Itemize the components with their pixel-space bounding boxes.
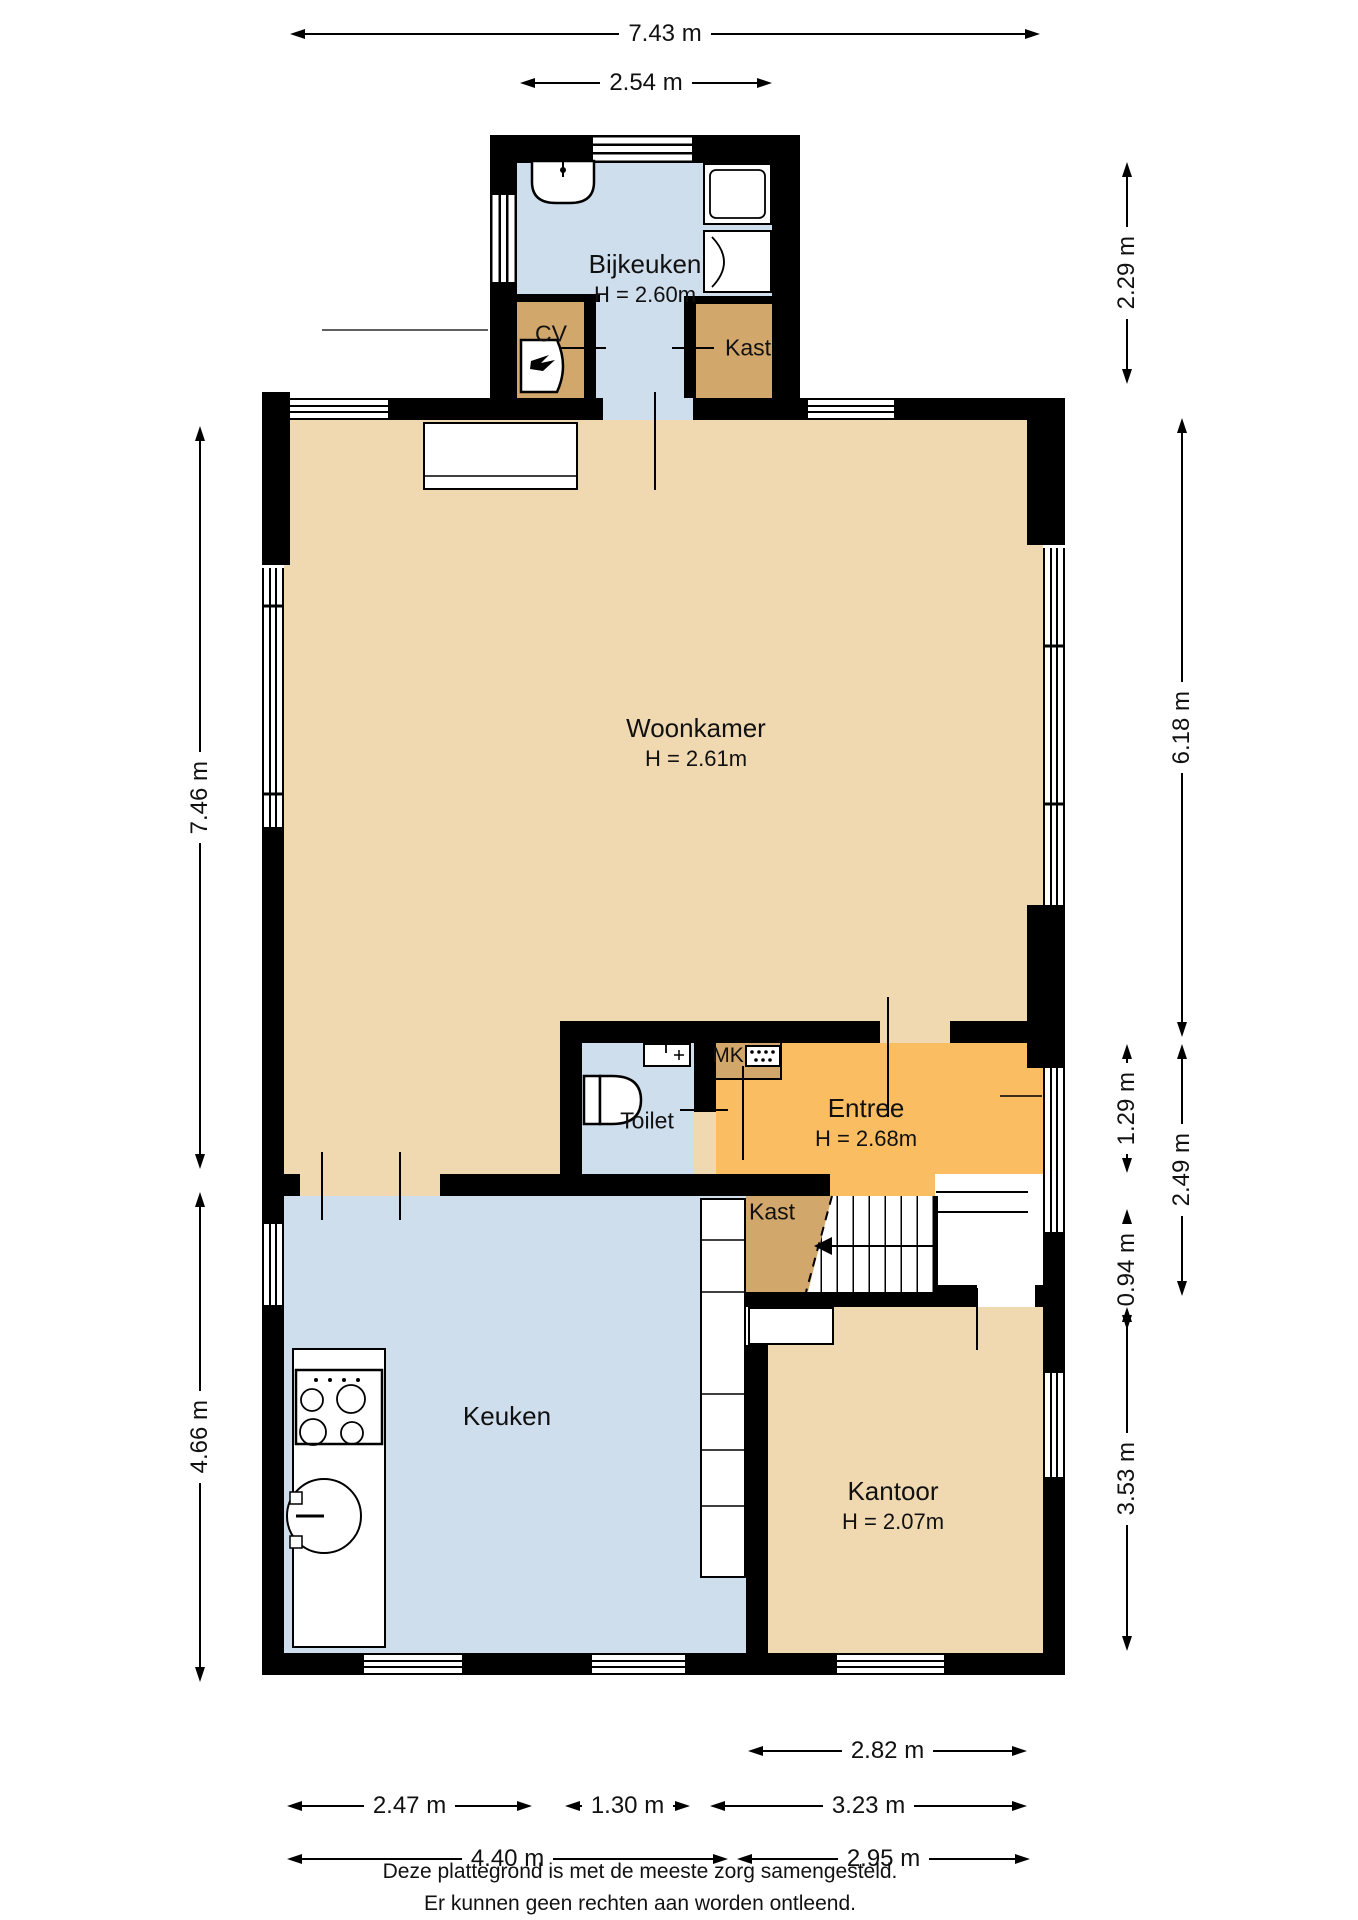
- label-woonkamer: Woonkamer H = 2.61m: [626, 712, 766, 772]
- wall: [262, 392, 290, 565]
- window: [262, 568, 284, 827]
- wall: [944, 1653, 1065, 1675]
- label-kantoor: Kantoor H = 2.07m: [842, 1475, 944, 1535]
- arrow-down-icon: [1122, 369, 1132, 384]
- wall: [950, 1021, 1043, 1043]
- disclaimer: Deze plattegrond is met de meeste zorg s…: [240, 1856, 1040, 1919]
- arrow-up-icon: [1177, 418, 1187, 433]
- wall: [262, 1653, 364, 1675]
- room-height: H = 2.07m: [842, 1508, 944, 1536]
- arrow-right-icon: [1012, 1801, 1027, 1811]
- window: [290, 398, 388, 420]
- dim-label: 1.30 m: [582, 1792, 673, 1820]
- dim-label: 2.29 m: [1113, 227, 1141, 318]
- dim-left-lower: 4.66 m: [191, 1192, 209, 1682]
- label-kast-top: Kast: [725, 334, 771, 363]
- wall: [560, 1021, 880, 1043]
- arrow-right-icon: [517, 1801, 532, 1811]
- arrow-down-icon: [195, 1667, 205, 1682]
- washing-machine-icon: [703, 163, 772, 225]
- wall: [772, 135, 800, 420]
- dim-label: 3.23 m: [823, 1792, 914, 1820]
- wall: [262, 1305, 284, 1675]
- label-entree: Entree H = 2.68m: [815, 1092, 917, 1152]
- arrow-up-icon: [1122, 162, 1132, 177]
- arrow-up-icon: [1122, 1044, 1132, 1059]
- arrow-down-icon: [1177, 1281, 1187, 1296]
- dim-bottom-kantoor-upper: 3.23 m: [710, 1797, 1027, 1815]
- wall: [262, 1174, 300, 1196]
- room-hal-landing: [935, 1174, 1043, 1292]
- dim-label: 1.29 m: [1113, 1063, 1141, 1154]
- disclaimer-line1: Deze plattegrond is met de meeste zorg s…: [240, 1856, 1040, 1888]
- dim-bottom-keuken-mid: 1.30 m: [565, 1797, 690, 1815]
- wall: [1035, 1285, 1043, 1307]
- wall: [560, 1021, 582, 1174]
- window: [364, 1653, 462, 1675]
- room-height: H = 2.61m: [626, 745, 766, 773]
- wall: [262, 827, 284, 1224]
- arrow-up-icon: [195, 426, 205, 441]
- wall: [388, 398, 603, 420]
- room-height: H = 2.68m: [815, 1125, 917, 1153]
- wall: [684, 300, 696, 398]
- window: [490, 195, 517, 282]
- wall: [490, 294, 600, 302]
- arrow-up-icon: [1122, 1209, 1132, 1224]
- dim-label: 2.47 m: [364, 1792, 455, 1820]
- dim-right-hal: 0.94 m: [1118, 1209, 1136, 1300]
- arrow-right-icon: [1012, 1746, 1027, 1756]
- front-door: [1043, 1068, 1065, 1232]
- room-name: Kantoor: [842, 1475, 944, 1508]
- dim-bottom-kantoor-top: 2.82 m: [748, 1742, 1027, 1760]
- window: [837, 1653, 944, 1675]
- arrow-up-icon: [1122, 1307, 1132, 1322]
- wall: [1027, 905, 1065, 1068]
- wall: [693, 398, 808, 420]
- dim-label: 6.18 m: [1168, 682, 1196, 773]
- label-cv: CV: [535, 320, 567, 349]
- wall: [490, 135, 517, 195]
- arrow-right-icon: [757, 78, 772, 88]
- window: [1043, 1373, 1065, 1477]
- arrow-up-icon: [1177, 1044, 1187, 1059]
- window: [262, 1224, 284, 1305]
- room-name: Entree: [815, 1092, 917, 1125]
- arrow-down-icon: [1122, 1636, 1132, 1651]
- kitchen-counter-right: [700, 1198, 746, 1578]
- dim-bottom-keuken-left: 2.47 m: [287, 1797, 532, 1815]
- kitchen-counter-left: [292, 1348, 386, 1648]
- window: [593, 135, 692, 163]
- dim-right-entree-total: 2.49 m: [1173, 1044, 1191, 1296]
- stairs-closet: [748, 1307, 834, 1345]
- arrow-left-icon: [710, 1801, 725, 1811]
- arrow-down-icon: [1122, 1158, 1132, 1173]
- dim-label: 2.49 m: [1168, 1124, 1196, 1215]
- room-height: H = 2.60m: [589, 281, 702, 309]
- floor-plan: Bijkeuken H = 2.60m CV Kast Woonkamer H …: [0, 0, 1358, 1920]
- wall: [1043, 1232, 1065, 1373]
- label-toilet: Toilet: [620, 1107, 674, 1136]
- wall: [440, 1174, 830, 1196]
- dim-right-woonkamer: 6.18 m: [1173, 418, 1191, 1037]
- dim-label: 7.43 m: [619, 20, 710, 48]
- arrow-down-icon: [195, 1154, 205, 1169]
- dim-right-bijkeuken: 2.29 m: [1118, 162, 1136, 384]
- arrow-left-icon: [520, 78, 535, 88]
- arrow-up-icon: [195, 1192, 205, 1207]
- room-name: Bijkeuken: [589, 248, 702, 281]
- label-kast-mid: Kast: [749, 1198, 795, 1227]
- dim-label: 7.46 m: [186, 752, 214, 843]
- arrow-left-icon: [565, 1801, 580, 1811]
- wall: [746, 1345, 768, 1653]
- disclaimer-line2: Er kunnen geen rechten aan worden ontlee…: [240, 1888, 1040, 1920]
- label-keuken: Keuken: [463, 1400, 551, 1433]
- arrow-left-icon: [290, 29, 305, 39]
- dim-top-bijkeuken: 2.54 m: [520, 74, 772, 92]
- wall: [1043, 1477, 1065, 1675]
- arrow-right-icon: [675, 1801, 690, 1811]
- dim-top-total: 7.43 m: [290, 25, 1040, 43]
- window: [1043, 548, 1065, 905]
- dim-label: 4.66 m: [186, 1391, 214, 1482]
- arrow-right-icon: [1025, 29, 1040, 39]
- label-bijkeuken: Bijkeuken H = 2.60m: [589, 248, 702, 308]
- dim-left-upper: 7.46 m: [191, 426, 209, 1169]
- cabinet: [423, 422, 578, 490]
- wall: [462, 1653, 592, 1675]
- wall: [685, 1653, 837, 1675]
- wall: [1027, 398, 1065, 545]
- dim-label: 0.94 m: [1113, 1224, 1141, 1315]
- window: [808, 398, 894, 420]
- wall: [584, 302, 596, 400]
- room-name: Woonkamer: [626, 712, 766, 745]
- window: [592, 1653, 685, 1675]
- dryer-icon: [703, 230, 772, 293]
- arrow-left-icon: [748, 1746, 763, 1756]
- label-mk: MK: [712, 1043, 744, 1069]
- dim-right-entree: 1.29 m: [1118, 1044, 1136, 1173]
- dim-label: 2.82 m: [842, 1737, 933, 1765]
- dim-right-kantoor: 3.53 m: [1118, 1307, 1136, 1651]
- dim-label: 3.53 m: [1113, 1433, 1141, 1524]
- arrow-down-icon: [1177, 1022, 1187, 1037]
- arrow-left-icon: [287, 1801, 302, 1811]
- dim-label: 2.54 m: [600, 69, 691, 97]
